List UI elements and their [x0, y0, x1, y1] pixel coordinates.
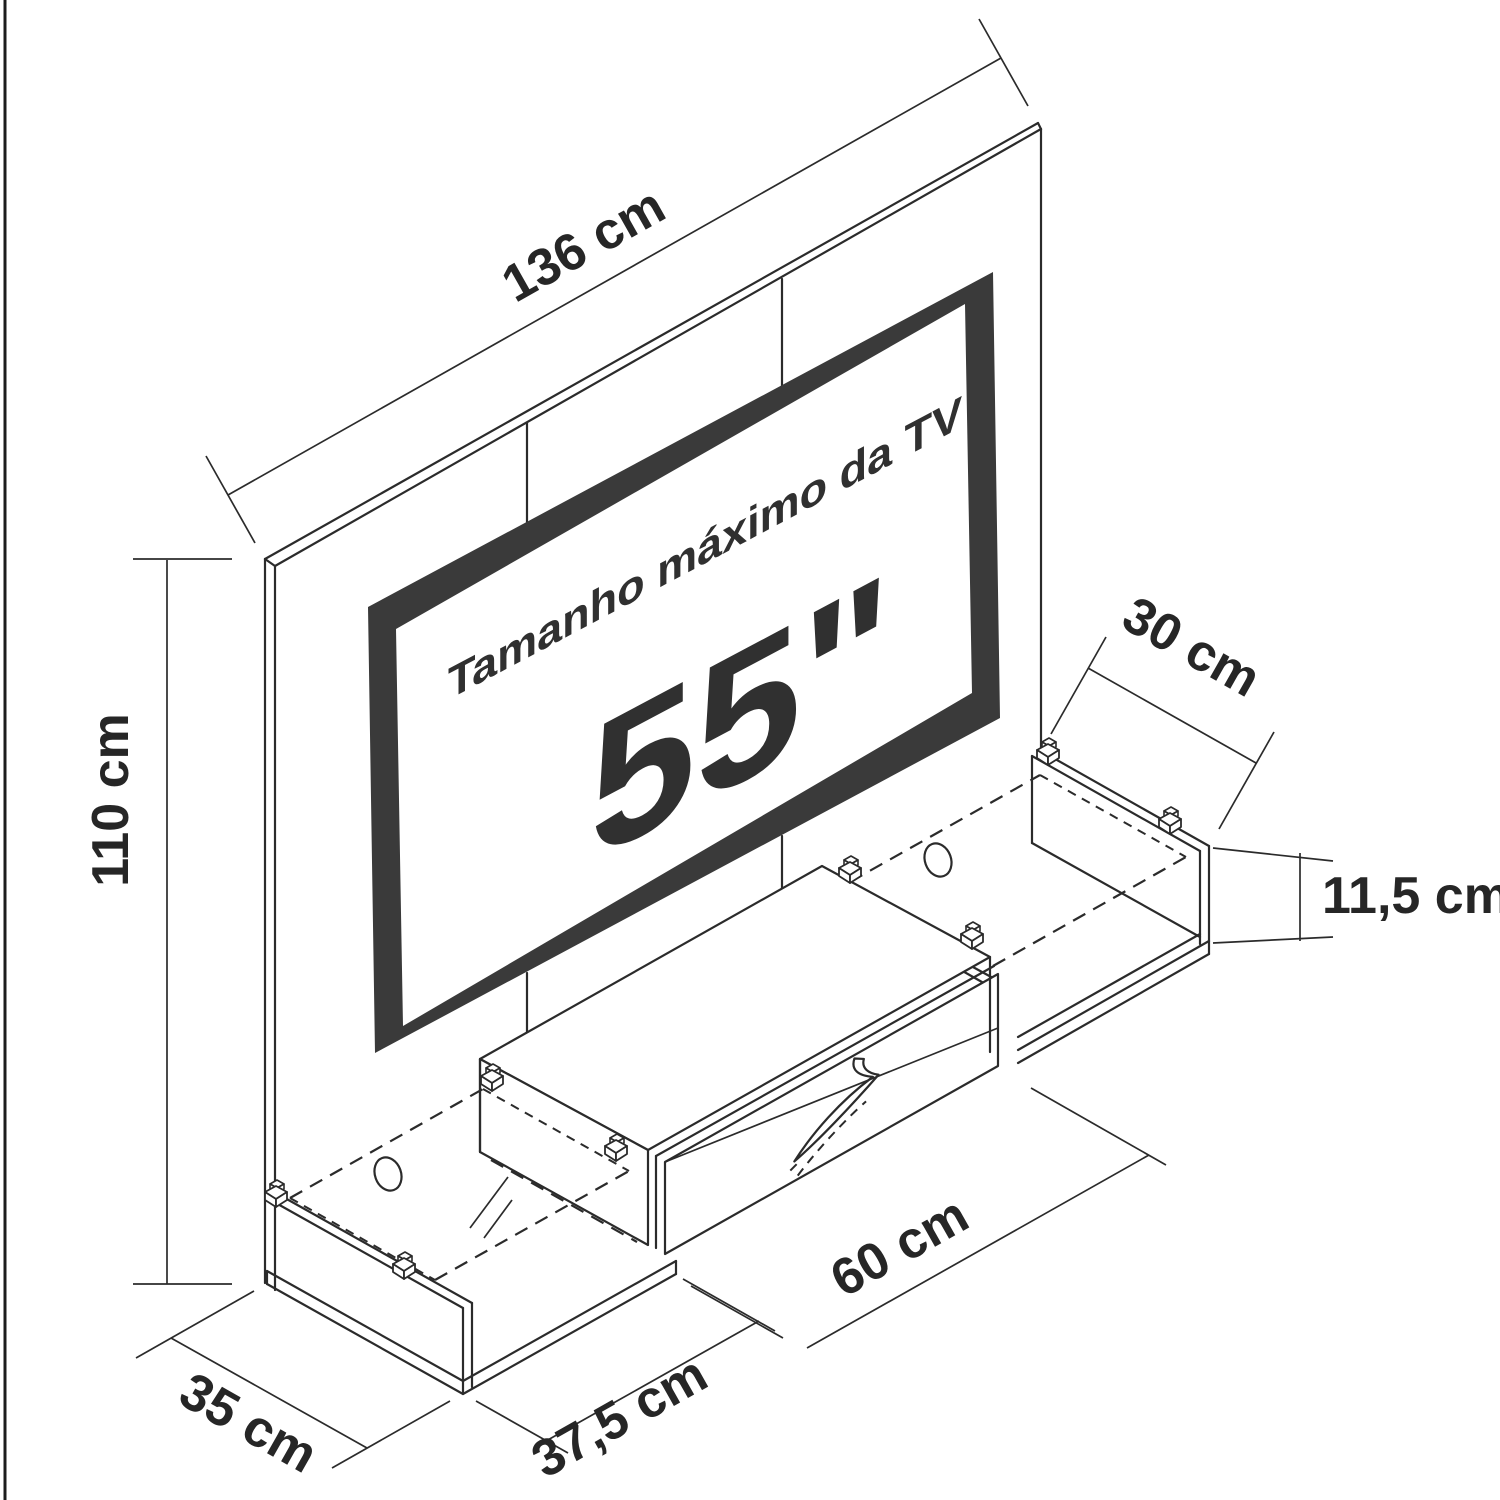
glass-mark [470, 1177, 508, 1228]
tv-panel-technical-drawing: Tamanho máximo da TV 55" [0, 0, 1500, 1500]
glass-shelf-edge [993, 857, 1186, 966]
dimension-right-shelf-depth: 30 cm [1051, 586, 1274, 829]
left-shelf-width-label: 37,5 cm [522, 1345, 717, 1489]
shelf-height-label: 11,5 cm [1322, 867, 1500, 925]
left-shelf-depth-label: 35 cm [170, 1362, 327, 1485]
cable-hole [370, 1154, 406, 1195]
right-shelf-depth-label: 30 cm [1113, 586, 1270, 709]
diagram-canvas: Tamanho máximo da TV 55" [0, 0, 1500, 1500]
glass-shelf-edge [435, 1171, 629, 1280]
panel-height-label: 110 cm [82, 713, 140, 887]
drawer-width-label: 60 cm [821, 1186, 978, 1309]
dimension-left-shelf-depth: 35 cm [136, 1291, 450, 1485]
dimension-shelf-height: 11,5 cm [1213, 848, 1500, 943]
glass-mark [484, 1200, 512, 1238]
drawer [480, 866, 998, 1254]
dimension-left-shelf-width: 37,5 cm [476, 1279, 775, 1489]
dimension-panel-height: 110 cm [82, 559, 232, 1284]
cable-hole [920, 840, 956, 881]
